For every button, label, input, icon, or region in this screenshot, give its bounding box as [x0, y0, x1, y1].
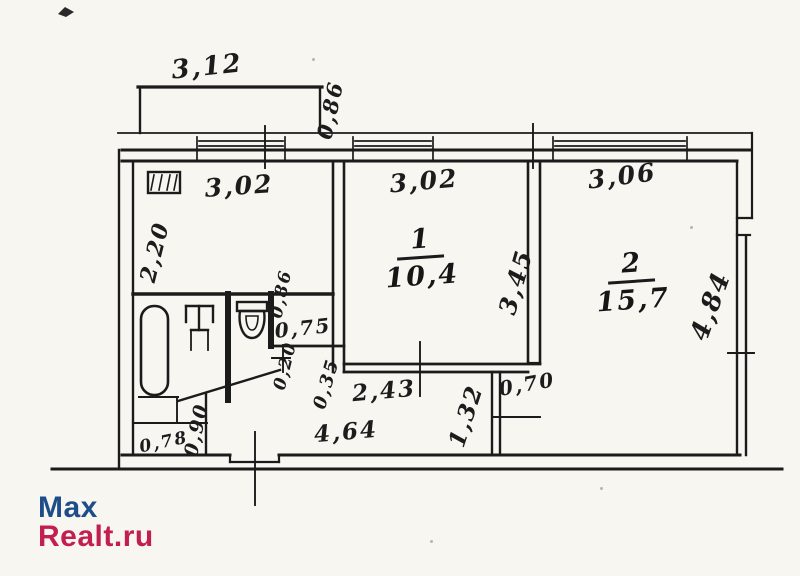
sink-icon	[186, 306, 213, 350]
room2-number: 2	[606, 248, 655, 284]
windows	[197, 137, 687, 159]
room1-number: 1	[395, 224, 444, 260]
paper-speck	[600, 487, 603, 490]
watermark-brand-bottom: Realt.ru	[38, 523, 154, 552]
dim-kitchen-width: 3,02	[204, 171, 274, 201]
paper-speck	[312, 58, 315, 61]
scan-artifact	[58, 7, 74, 17]
watermark-brand-top: Max	[38, 494, 154, 523]
room2-area: 15,7	[596, 284, 671, 316]
paper-speck	[690, 226, 693, 229]
dim-alcove-width: 0,75	[274, 315, 332, 341]
toilet-icon	[237, 302, 267, 338]
stove-icon	[148, 172, 180, 193]
dim-room1-width: 3,02	[389, 166, 460, 197]
room2-label: 2 15,7	[593, 248, 671, 317]
paper-speck	[430, 540, 433, 543]
site-watermark: Max Realt.ru	[38, 494, 154, 551]
dim-balcony-width: 3,12	[170, 50, 244, 83]
dim-room1-bottom: 2,43	[351, 377, 417, 405]
room1-area: 10,4	[385, 260, 460, 292]
balcony-outline	[138, 87, 322, 133]
dim-hall: 4,64	[313, 418, 379, 446]
room1-label: 1 10,4	[382, 224, 460, 293]
floorplan-scan: 3,12 0,86 3,02 3,02 3,06 2,20 3,45 4,84 …	[0, 0, 800, 576]
bathtub-icon	[139, 306, 172, 397]
